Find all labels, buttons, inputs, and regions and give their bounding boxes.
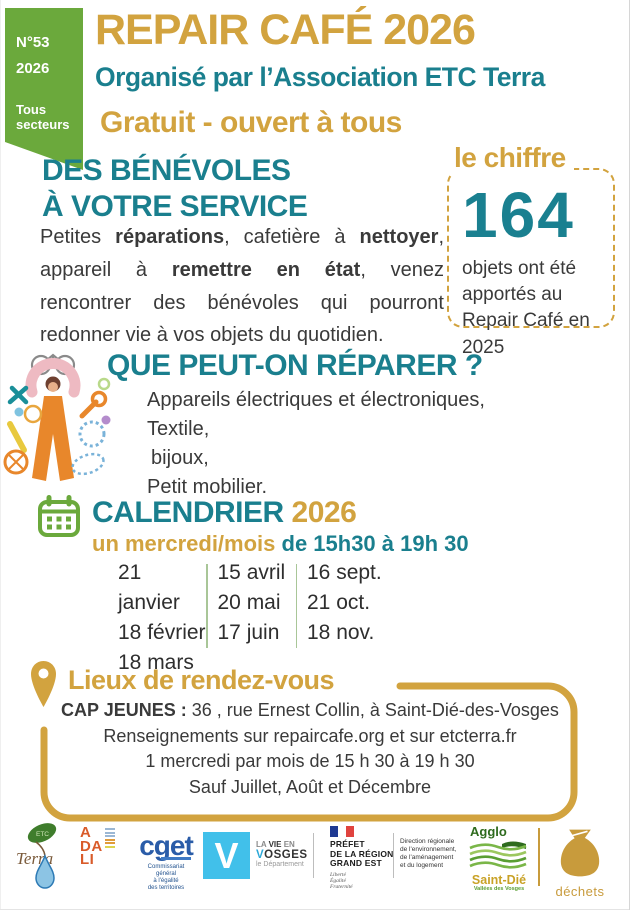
organizer-subtitle: Organisé par l’Association ETC Terra (95, 62, 545, 93)
french-flag-icon (330, 826, 393, 837)
location-schedule: 1 mercredi par mois de 15 h 30 à 19 h 30 (60, 749, 560, 775)
location-info: Renseignements sur repaircafe.org et sur… (60, 724, 560, 750)
repair-illustration (2, 350, 124, 492)
dates-column-1: 21 janvier 18 février 18 mars (118, 558, 206, 678)
issue-number: N°53 (16, 30, 83, 56)
agglo-saint-die-logo: Agglo Saint-Dié Vallées des Vosges (466, 824, 532, 892)
location-exceptions: Sauf Juillet, Août et Décembre (60, 775, 560, 801)
cget-caption: Commissariat général à l'égalité des ter… (128, 864, 204, 892)
page-title: REPAIR CAFÉ 2026 (95, 6, 475, 55)
footer-divider (393, 833, 394, 878)
footer-divider (313, 833, 314, 878)
adali-bars (105, 828, 115, 867)
stat-caption: objets ont été apportés au Repair Café e… (462, 256, 610, 361)
prefet-grand-est-logo: PRÉFET DE LA RÉGION GRAND EST Liberté Ég… (330, 826, 393, 890)
dates-divider (296, 564, 298, 648)
waste-bag-icon (557, 828, 603, 878)
date: 18 février (118, 618, 206, 648)
date: 18 nov. (307, 618, 391, 648)
date: 16 sept. (307, 558, 391, 588)
dates-column-3: 16 sept. 21 oct. 18 nov. (307, 558, 391, 678)
vosges-departement-logo: V LA VIE EN VOSGES le Département (203, 832, 308, 879)
date: 21 janvier (118, 558, 206, 618)
issue-ribbon: N°53 2026 Tous secteurs (5, 8, 83, 170)
adali-logo: A DA LI (80, 826, 115, 867)
calendar-title: CALENDRIER 2026 (92, 496, 356, 530)
etc-terra-logo: ETC Terra (14, 820, 72, 896)
issue-year: 2026 (16, 56, 83, 82)
dechets-logo: déchets (548, 828, 612, 899)
issue-sector: Tous secteurs (16, 102, 83, 132)
stat-value: 164 (462, 178, 575, 252)
location-address: CAP JEUNES : 36 , rue Ernest Collin, à S… (60, 698, 560, 724)
agglo-waves (468, 839, 530, 869)
volunteers-heading: DES BÉNÉVOLES À VOTRE SERVICE (42, 153, 307, 225)
repair-item: Appareils électriques et électroniques, (147, 386, 485, 415)
location-details: CAP JEUNES : 36 , rue Ernest Collin, à S… (60, 698, 560, 800)
date: 15 avril (218, 558, 296, 588)
repair-item: bijoux, (147, 444, 485, 473)
footer-gold-divider (538, 828, 540, 886)
date: 21 oct. (307, 588, 391, 618)
svg-text:ETC: ETC (36, 831, 49, 838)
repair-heading: QUE PEUT-ON RÉPARER ? (107, 349, 483, 383)
dates-divider (206, 564, 208, 648)
calendar-dates: 21 janvier 18 février 18 mars 15 avril 2… (118, 558, 391, 678)
date: 20 mai (218, 588, 296, 618)
date: 17 juin (218, 618, 296, 648)
volunteers-paragraph: Petites réparations, cafetière à nettoye… (40, 221, 444, 352)
stat-label: le chiffre (450, 142, 574, 174)
calendar-icon (36, 495, 82, 539)
repair-list: Appareils électriques et électroniques, … (147, 386, 485, 502)
cget-logo: cget Commissariat général à l'égalité de… (128, 833, 204, 892)
repair-item: Textile, (147, 415, 485, 444)
dreal-text: Direction régionale de l'environnement, … (400, 838, 462, 870)
free-open-tagline: Gratuit - ouvert à tous (100, 106, 402, 140)
dates-column-2: 15 avril 20 mai 17 juin (218, 558, 296, 678)
calendar-subtitle: un mercredi/mois de 15h30 à 19h 30 (92, 531, 469, 557)
repair-cafe-flyer: N°53 2026 Tous secteurs REPAIR CAFÉ 2026… (0, 0, 630, 910)
